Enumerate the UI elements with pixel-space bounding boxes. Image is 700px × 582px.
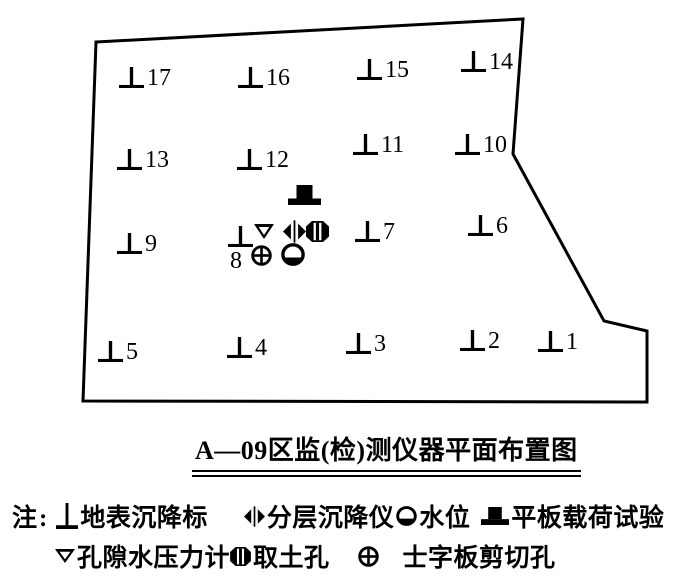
settlement-marker-1: 1 [538,328,578,352]
legend-item-label: 水位 [419,498,470,534]
settlement-marker-icon [355,221,380,242]
legend-item-water-level: 水位 [396,498,470,534]
settlement-marker-10: 10 [455,131,507,155]
marker-number: 4 [255,336,267,360]
legend-item-label: 孔隙水压力计 [77,538,230,574]
figure: 1716151413121110987654321 A—09区监(检)测仪器平面… [0,0,700,582]
instrument-soil-sampling [306,221,329,242]
legend-item-soil-sampling: 取土孔 [230,538,330,574]
settlement-marker-icon [353,134,378,155]
marker-number: 13 [145,148,169,172]
legend-item-label: 士字板剪切孔 [403,538,556,574]
plate-load-icon [481,507,509,525]
legend-row-1: 注: 地表沉降标分层沉降仪水位平板载荷试验 [12,498,664,534]
plate-load-icon [288,185,321,205]
layered-settlement-icon [244,506,265,527]
settlement-marker-11: 11 [353,131,404,155]
settlement-marker-5: 5 [98,338,138,362]
settlement-marker-12: 12 [237,146,289,170]
instrument-layered-settlement [283,220,306,243]
settlement-marker-3: 3 [346,330,386,354]
instrument-water-level [281,243,305,266]
marker-number: 3 [374,332,386,356]
legend-item-settlement-marker: 地表沉降标 [56,498,208,534]
soil-sampling-icon [306,221,329,242]
site-plan: 1716151413121110987654321 [0,0,700,430]
water-level-icon [281,243,305,266]
settlement-marker-16: 16 [238,64,290,88]
marker-number: 9 [145,232,157,256]
legend-item-label: 取土孔 [253,538,330,574]
settlement-marker-2: 2 [460,327,500,351]
settlement-marker-icon [455,134,480,155]
marker-number: 12 [265,148,289,172]
settlement-marker-15: 15 [357,56,409,80]
settlement-marker-icon [461,51,486,72]
marker-number: 11 [381,133,404,157]
settlement-marker-icon [460,330,485,351]
settlement-marker-14: 14 [461,48,513,72]
marker-number: 7 [383,220,395,244]
settlement-marker-17: 17 [119,64,171,88]
marker-number: 16 [266,66,290,90]
legend-item-label: 平板载荷试验 [511,498,664,534]
settlement-marker-4: 4 [227,334,267,358]
settlement-marker-icon [237,149,262,170]
vane-shear-icon [358,546,379,567]
marker-number: 1 [566,330,578,354]
settlement-marker-icon [228,226,253,247]
legend-note-label: 注: [12,498,49,534]
soil-sampling-icon [230,547,251,566]
settlement-marker-icon [119,67,144,88]
settlement-marker-icon [117,233,142,254]
pore-pressure-icon [55,549,75,563]
legend-item-layered-settlement: 分层沉降仪 [244,498,395,534]
settlement-marker-icon [468,215,493,236]
site-boundary-outline [0,0,700,430]
settlement-marker-9: 9 [117,230,157,254]
settlement-marker-13: 13 [117,146,169,170]
legend-item-pore-pressure: 孔隙水压力计 [55,538,230,574]
figure-caption: A—09区监(检)测仪器平面布置图 [192,430,581,477]
vane-shear-icon [251,245,272,266]
marker-number: 10 [483,133,507,157]
marker-number: 8 [230,249,242,273]
settlement-marker-icon [238,67,263,88]
instrument-vane-shear [251,245,272,266]
instrument-plate-load [288,185,321,205]
settlement-marker-8: 8 [228,226,253,273]
legend-item-plate-load: 平板载荷试验 [481,498,664,534]
marker-number: 2 [488,329,500,353]
settlement-marker-icon [98,341,123,362]
layered-settlement-icon [283,220,306,243]
settlement-marker-icon [56,503,78,529]
legend-item-vane-shear: 士字板剪切孔 [358,538,556,574]
settlement-marker-icon [538,331,563,352]
settlement-marker-icon [346,333,371,354]
marker-number: 5 [126,340,138,364]
water-level-icon [396,506,417,526]
settlement-marker-icon [117,149,142,170]
settlement-marker-icon [357,59,382,80]
marker-number: 14 [489,50,513,74]
settlement-marker-icon [227,337,252,358]
pore-pressure-icon [254,224,274,239]
settlement-marker-7: 7 [355,218,395,242]
marker-number: 15 [385,58,409,82]
legend-item-label: 分层沉降仪 [267,498,395,534]
legend-row-2: 孔隙水压力计取土孔士字板剪切孔 [55,538,556,574]
instrument-pore-pressure [254,224,274,239]
settlement-marker-6: 6 [468,212,508,236]
marker-number: 17 [147,66,171,90]
marker-number: 6 [496,214,508,238]
legend-item-label: 地表沉降标 [80,498,208,534]
